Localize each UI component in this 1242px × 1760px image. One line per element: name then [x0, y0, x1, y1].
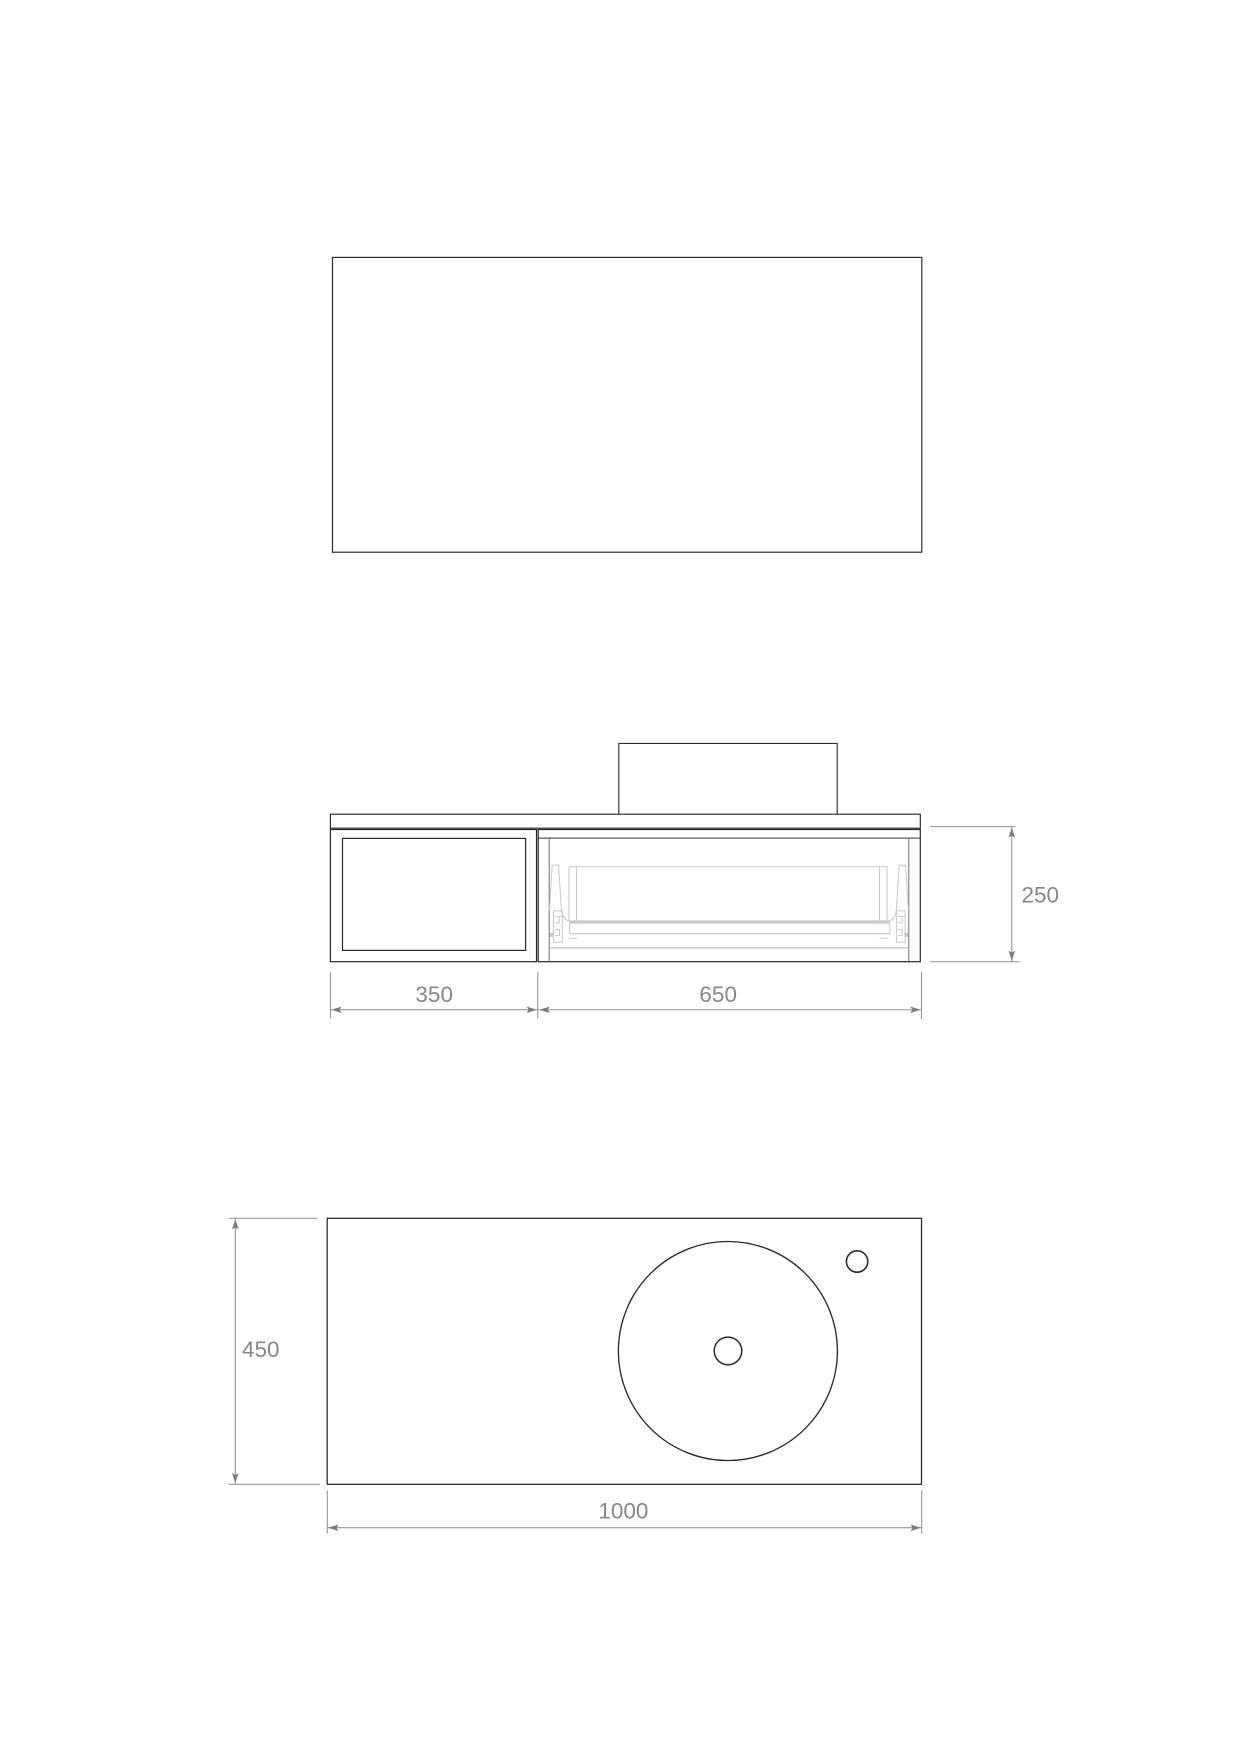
svg-text:450: 450 [242, 1337, 280, 1362]
svg-text:650: 650 [699, 982, 737, 1007]
svg-text:1000: 1000 [598, 1499, 648, 1524]
svg-text:350: 350 [415, 982, 453, 1007]
svg-text:250: 250 [1022, 882, 1060, 907]
